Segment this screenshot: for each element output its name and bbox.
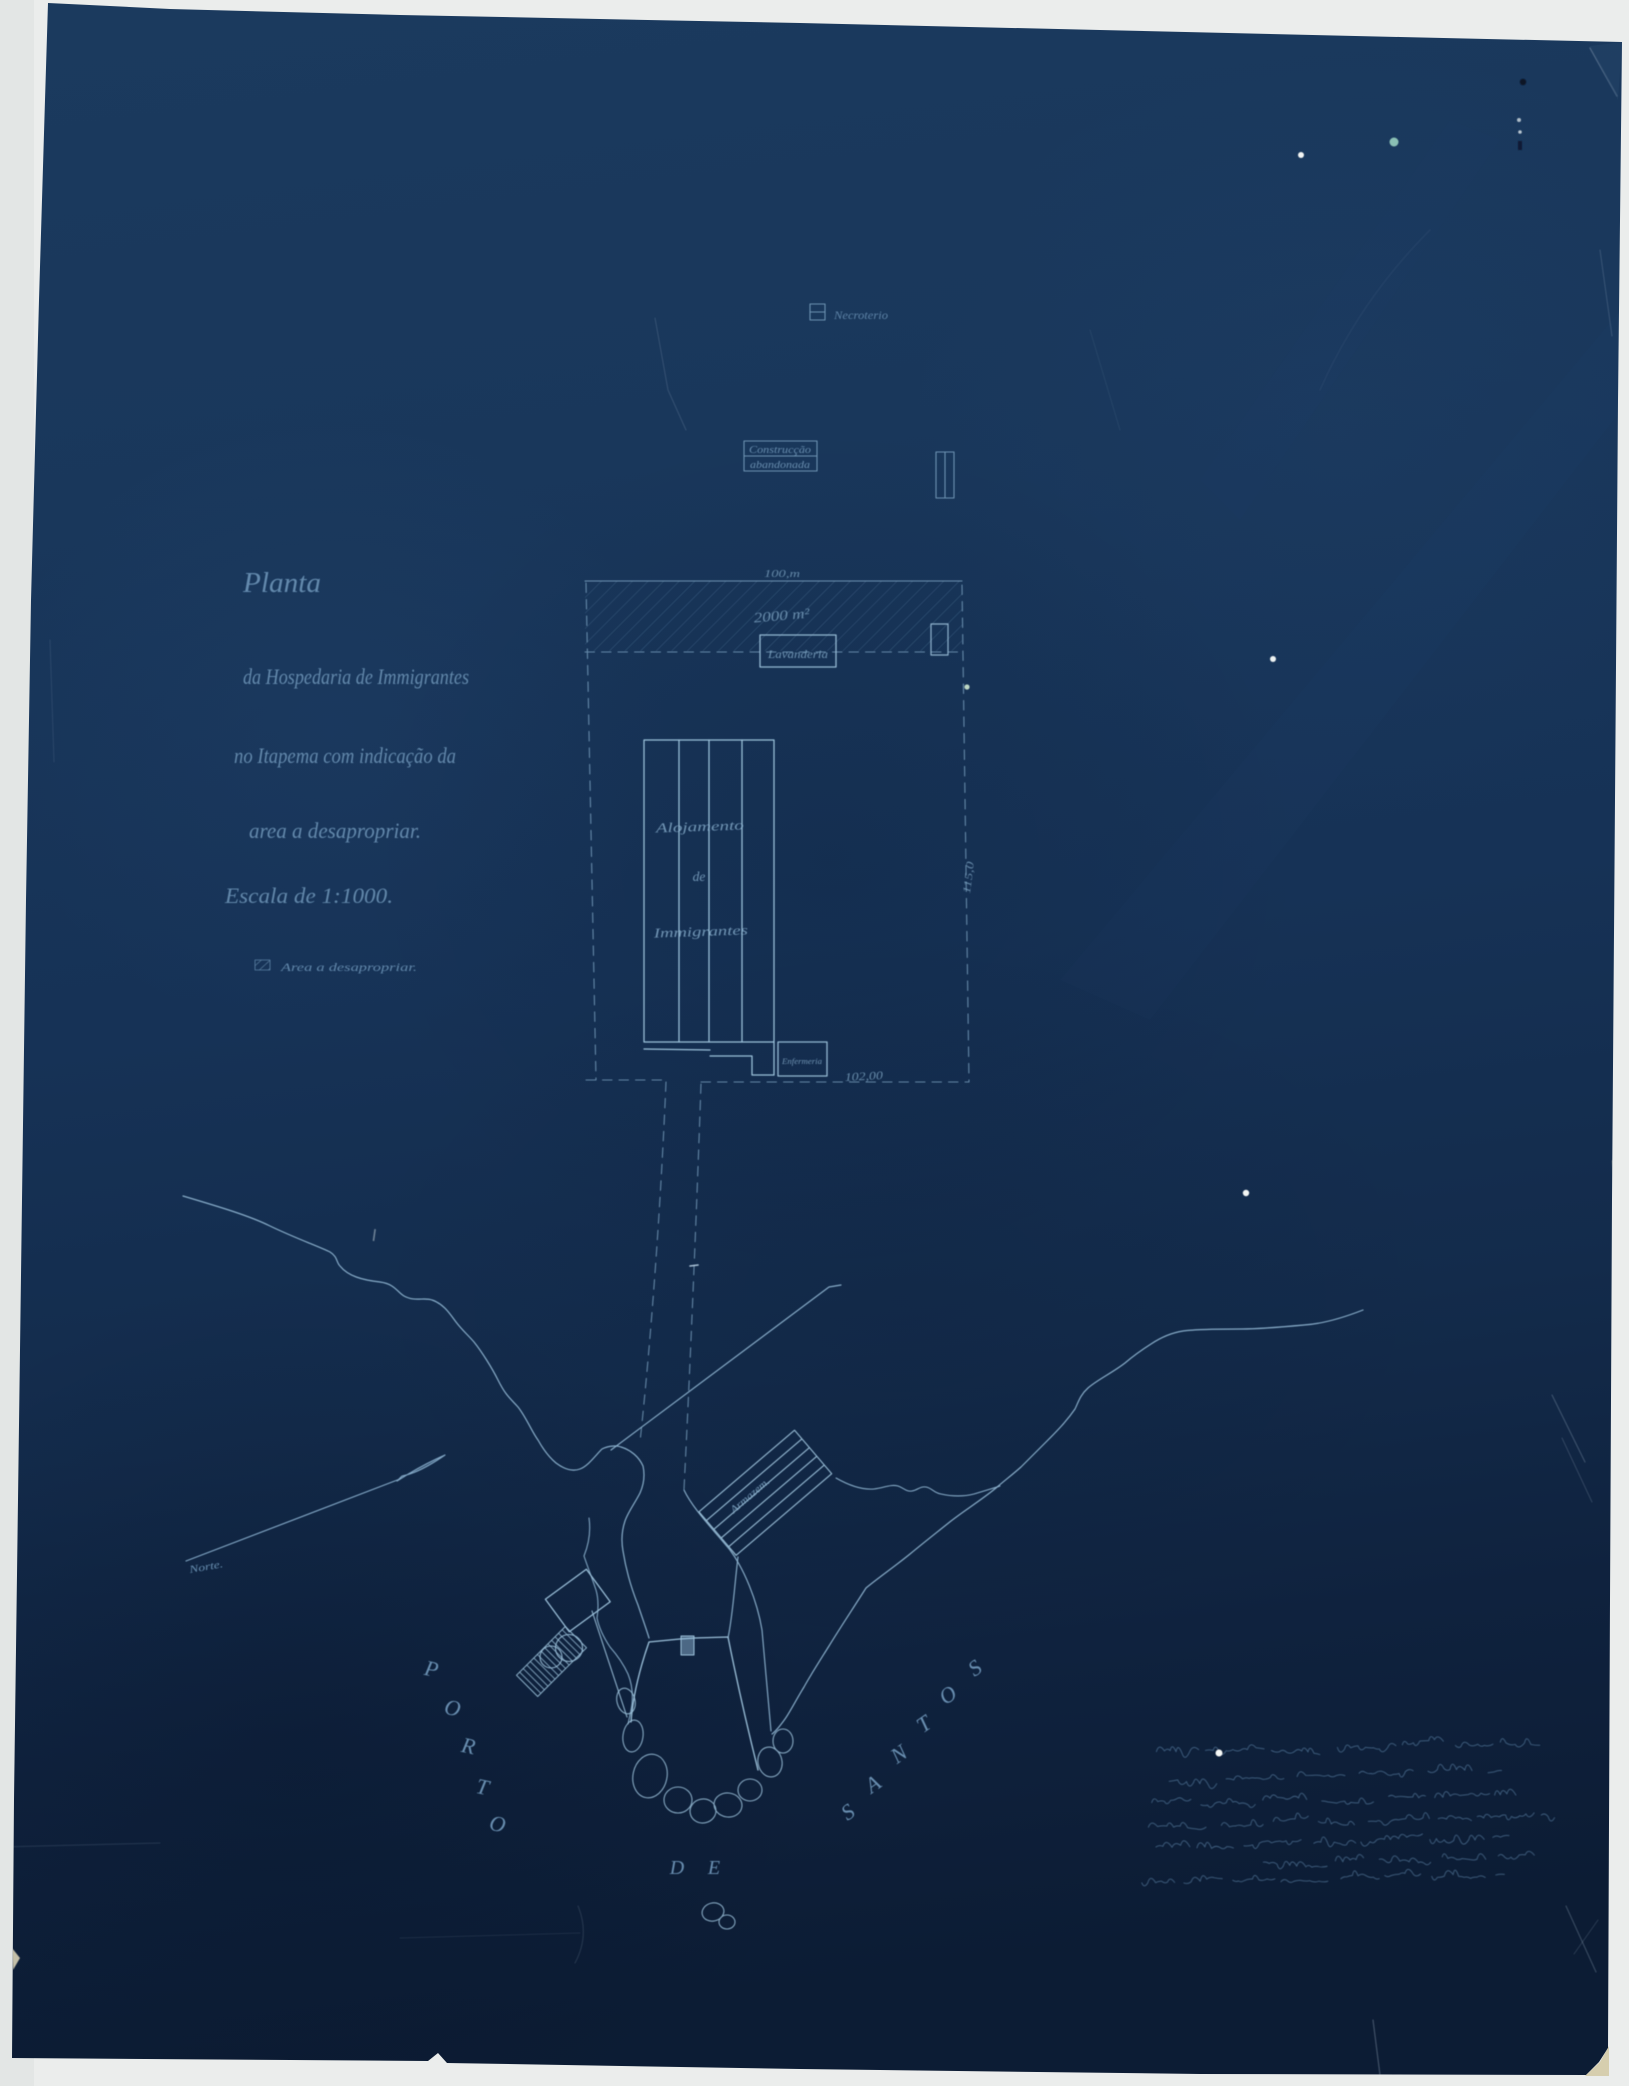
svg-text:Area a desapropriar.: Area a desapropriar. (280, 962, 417, 974)
svg-text:Construcção: Construcção (749, 445, 811, 456)
svg-text:Enfermeria: Enfermeria (781, 1056, 822, 1066)
svg-text:D: D (669, 1857, 685, 1879)
svg-text:de: de (693, 869, 706, 884)
svg-text:Lavanderia: Lavanderia (767, 649, 828, 661)
svg-text:100,m: 100,m (764, 568, 800, 580)
svg-text:da Hospedaria de Immigrantes: da Hospedaria de Immigrantes (243, 664, 469, 689)
svg-text:102,00: 102,00 (845, 1070, 884, 1084)
svg-text:Alojamento: Alojamento (654, 817, 744, 835)
svg-text:Planta: Planta (242, 567, 321, 599)
svg-text:Necroterio: Necroterio (833, 308, 888, 322)
svg-text:no Itapema com indicação da: no Itapema com indicação da (234, 743, 456, 768)
svg-text:area a desapropriar.: area a desapropriar. (249, 818, 421, 843)
svg-text:Escala de 1:1000.: Escala de 1:1000. (224, 883, 393, 908)
svg-text:abandonada: abandonada (750, 460, 810, 471)
svg-text:E: E (707, 1857, 720, 1879)
